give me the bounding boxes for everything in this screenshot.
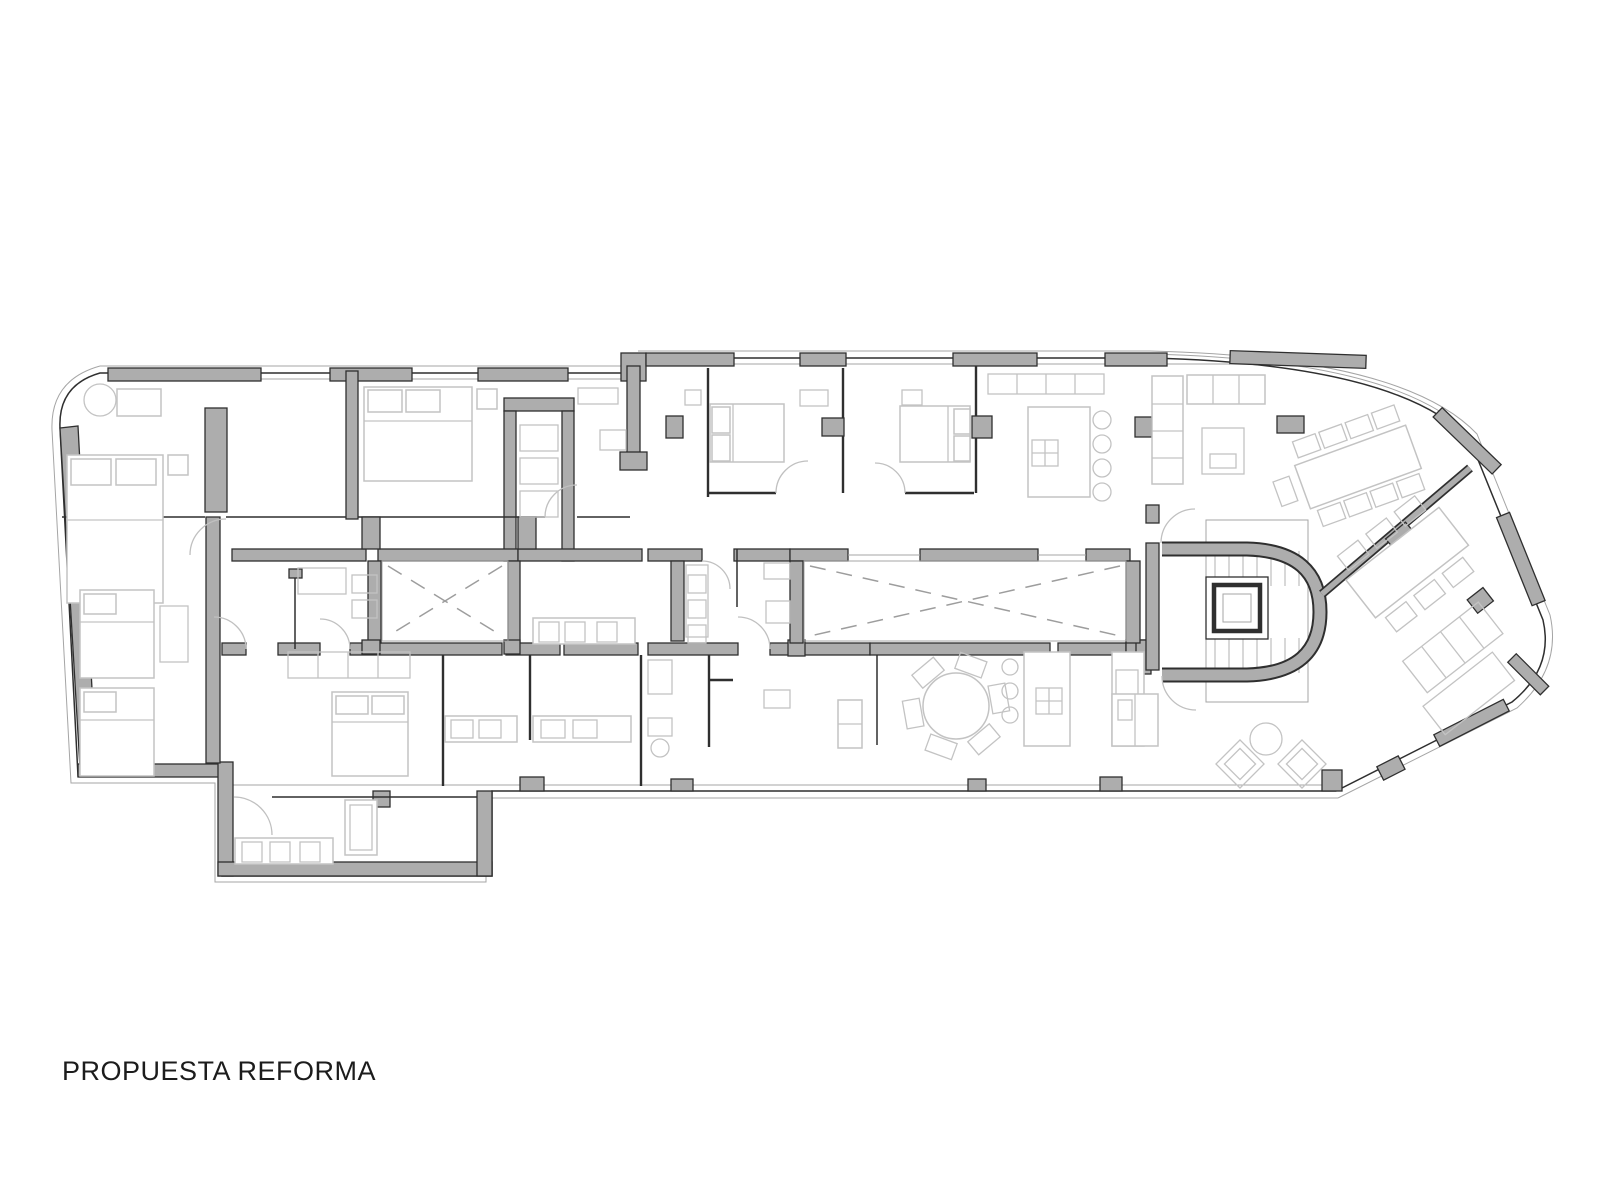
pillow	[954, 409, 970, 434]
lightwell-outline	[804, 561, 1126, 641]
terrace-block	[1467, 588, 1493, 614]
round-dining-set	[902, 652, 1009, 759]
wardrobe-wall-top	[504, 398, 574, 411]
vanity	[578, 388, 618, 404]
courtyard-wall-left	[790, 561, 803, 643]
pier	[968, 779, 986, 791]
chair	[1396, 474, 1424, 498]
chair	[902, 698, 924, 729]
fixture	[764, 563, 790, 579]
chair	[1319, 424, 1347, 448]
cabinet-box	[688, 575, 706, 593]
pier	[620, 452, 647, 470]
wall-left-rooms	[206, 517, 220, 763]
pier	[520, 777, 544, 791]
chair	[1370, 483, 1398, 507]
courtyard-wall-right	[1126, 561, 1140, 643]
nightstand	[477, 389, 497, 409]
wall-block-curved	[1230, 351, 1366, 369]
door-arc	[875, 463, 905, 493]
wall-band	[278, 643, 320, 655]
annex-wall-left	[218, 762, 233, 876]
floor-plan-canvas	[0, 0, 1600, 1200]
pillow	[84, 692, 116, 712]
wall-L	[709, 655, 733, 747]
wall-block-right	[1497, 512, 1546, 605]
pillow	[84, 594, 116, 614]
wall-band	[1086, 549, 1130, 561]
pillow	[406, 390, 440, 412]
pier-block	[1135, 417, 1152, 437]
shower	[648, 660, 672, 694]
bedroom5-furniture	[80, 590, 188, 776]
floor-plan-page: PROPUESTA REFORMA	[0, 0, 1600, 1200]
door-arc-stairs	[1161, 509, 1195, 543]
chair	[1273, 476, 1298, 506]
pillow	[336, 696, 368, 714]
shelf	[520, 458, 558, 484]
stool	[1093, 483, 1111, 501]
wall-band	[648, 549, 702, 561]
bedroom2-furniture	[364, 387, 626, 517]
cabinet-box	[688, 600, 706, 618]
chair	[1317, 502, 1345, 526]
chair	[1344, 493, 1372, 517]
annex-wall-right	[477, 791, 492, 876]
wall-block	[953, 353, 1037, 366]
bedroom6-furniture	[288, 652, 410, 776]
pier	[1100, 777, 1122, 791]
courtyard-wall-right	[508, 561, 520, 643]
plan-title: PROPUESTA REFORMA	[62, 1056, 376, 1087]
pier-diag-bottom	[1377, 756, 1405, 780]
nightstand	[902, 390, 922, 405]
closet-row	[288, 652, 410, 678]
chair	[1292, 434, 1320, 458]
courtyard-pier	[504, 640, 520, 654]
wardrobe	[160, 606, 188, 662]
nightstand	[168, 455, 188, 475]
pillow	[954, 436, 970, 461]
pillow	[116, 459, 156, 485]
lightwell-cross	[810, 566, 1120, 636]
door-arc-annex	[234, 797, 272, 835]
wall-band	[222, 643, 246, 655]
wardrobe-wall-l	[504, 411, 516, 561]
courtyard-wall-left	[368, 561, 381, 643]
planter-block	[1467, 588, 1493, 614]
stair-core	[1146, 505, 1320, 702]
lounger-divisions	[1422, 617, 1484, 678]
wall-band	[648, 643, 738, 655]
closet-wall-br1	[205, 408, 227, 512]
wall-block	[108, 368, 261, 381]
kitchen-island	[1028, 407, 1090, 497]
tall-cabinet	[686, 565, 708, 637]
dresser	[117, 389, 161, 416]
closet-divisions	[318, 652, 378, 678]
wall-step	[627, 366, 640, 456]
cabinet-box	[688, 625, 706, 643]
side-table-block	[1277, 416, 1304, 433]
stair-pier	[1146, 505, 1159, 523]
door-arc	[738, 617, 770, 649]
door-arc	[320, 619, 350, 649]
door-arc	[776, 461, 808, 493]
counter-divisions	[1017, 374, 1075, 394]
wall-block-corner	[1433, 408, 1501, 474]
wall-cap	[289, 569, 302, 578]
pier	[972, 416, 992, 438]
wall-band	[770, 643, 870, 655]
chair	[1345, 415, 1373, 439]
wall-block-diag-bottom	[1434, 699, 1509, 746]
toilet-tank	[648, 718, 672, 736]
wall-block	[330, 368, 412, 381]
side-table-round	[84, 384, 116, 416]
pillow	[71, 459, 111, 485]
coffee-table	[1202, 428, 1244, 474]
wall-block	[800, 353, 846, 366]
coffee-table-inner	[1210, 454, 1236, 468]
wall-band	[518, 549, 642, 561]
courtyard-2	[790, 561, 1140, 643]
pier-corner	[1322, 770, 1342, 791]
desk	[298, 568, 346, 594]
fixture	[766, 601, 790, 623]
wall-band	[734, 549, 790, 561]
wall-band	[232, 549, 366, 561]
sofa-chaise	[1187, 375, 1265, 404]
nightstand	[800, 390, 828, 406]
stair-wall-left	[1146, 543, 1159, 670]
chair	[1371, 405, 1399, 429]
facade-offset-bottom-left	[52, 366, 1338, 882]
sofa	[1152, 376, 1183, 484]
wall-band	[920, 549, 1038, 561]
annex-furniture	[235, 800, 377, 864]
stool	[1002, 683, 1018, 699]
lounge-chair	[1216, 740, 1264, 788]
lightwell-cross	[388, 566, 502, 636]
stool	[1093, 435, 1111, 453]
wall-br1-br2	[346, 371, 358, 519]
side-table-round	[1250, 723, 1282, 755]
shelf	[520, 491, 558, 517]
pier	[671, 779, 693, 791]
wall-block	[478, 368, 568, 381]
pillow	[712, 407, 730, 433]
bedroom4-furniture	[900, 390, 970, 462]
wall-block	[646, 353, 734, 366]
elevator	[1206, 577, 1268, 639]
lounge-chair	[1278, 740, 1326, 788]
toilet	[600, 430, 626, 450]
nightstand	[685, 390, 701, 405]
wall-band	[378, 549, 518, 561]
basin	[764, 690, 790, 708]
kitchen-counter	[1024, 652, 1070, 746]
pillow	[372, 696, 404, 714]
round-table	[923, 673, 989, 739]
toilet-bowl	[651, 739, 669, 757]
hall-lounge-furniture	[1112, 694, 1326, 788]
kitchen-living-furniture	[988, 374, 1304, 501]
pier	[822, 418, 844, 436]
stool	[1093, 459, 1111, 477]
wall	[671, 561, 684, 641]
pillow	[712, 435, 730, 461]
pillow	[368, 390, 402, 412]
bedroom3-furniture	[685, 390, 828, 462]
wall-block	[1105, 353, 1167, 366]
shelf	[520, 425, 558, 451]
courtyard-pier	[518, 517, 536, 549]
courtyard-pier	[362, 517, 380, 549]
stool	[1093, 411, 1111, 429]
wall-band	[790, 549, 848, 561]
wall-band	[564, 643, 638, 655]
pier	[666, 416, 683, 438]
stool	[1002, 659, 1018, 675]
